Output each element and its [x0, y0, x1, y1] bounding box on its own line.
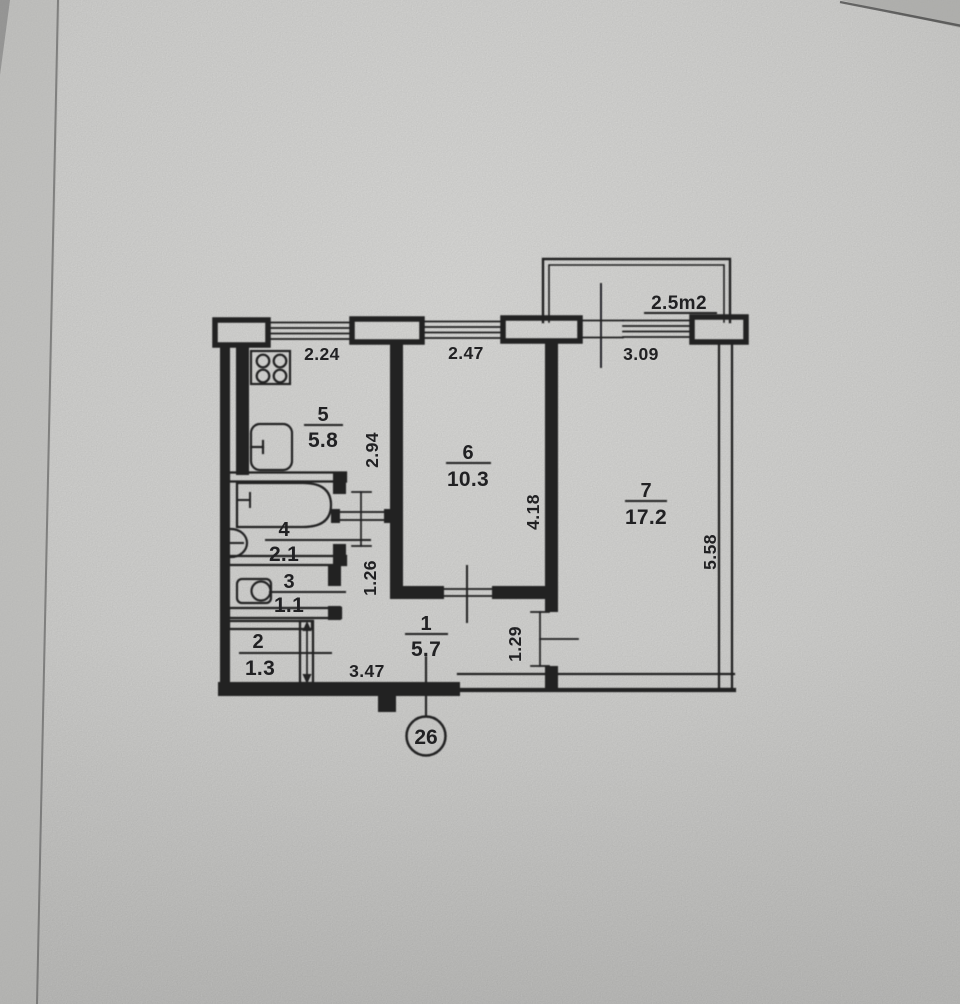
wall-bottom-notch: [378, 696, 396, 712]
dim-kitchen-window: 2.24: [304, 344, 340, 364]
room5-number: 5: [317, 404, 328, 426]
apartment-number: 26: [414, 726, 437, 749]
room5-area: 5.8: [308, 429, 338, 452]
wall-bath-right-upper: [333, 472, 346, 494]
dim-kitchen-depth: 2.94: [362, 432, 382, 468]
wall-kitchen-left: [236, 345, 249, 475]
balcony-area-label: 2.5m2: [651, 293, 707, 314]
scanned-floor-plan-page: 2.24 2.47 3.09 2.5m2 2.94 1.26 4.18 5.58…: [0, 0, 960, 1004]
paper-grain: [0, 0, 960, 1004]
wall-room6-bottom-right: [492, 586, 558, 599]
wall-exterior-left: [220, 343, 230, 695]
dim-room6-window: 2.47: [448, 343, 484, 363]
room1-area: 5.7: [411, 638, 441, 661]
wall-room6-bottom-left: [390, 586, 444, 599]
dim-room7-door: 1.29: [505, 626, 525, 662]
room2-number: 2: [252, 631, 263, 653]
room1-number: 1: [420, 613, 431, 635]
wall-bottom-hall: [218, 682, 460, 696]
dim-corridor-width: 1.26: [360, 560, 380, 596]
wall-wc-right-upper: [328, 565, 341, 586]
room4-number: 4: [278, 519, 290, 541]
wall-kitchen-room6: [390, 341, 403, 587]
dim-balcony-front: 3.09: [623, 344, 659, 364]
dim-room6-depth: 4.18: [523, 494, 543, 530]
floor-plan: 2.24 2.47 3.09 2.5m2 2.94 1.26 4.18 5.58…: [0, 0, 960, 1004]
room4-area: 2.1: [269, 543, 299, 566]
room2-area: 1.3: [245, 657, 275, 680]
room6-area: 10.3: [447, 468, 489, 491]
dim-room7-depth: 5.58: [700, 534, 720, 570]
room7-number: 7: [640, 480, 651, 502]
dim-hall-length: 3.47: [349, 661, 385, 681]
room3-number: 3: [283, 571, 294, 593]
wall-room6-room7-upper: [545, 340, 558, 612]
room6-number: 6: [462, 442, 473, 464]
room3-area: 1.1: [274, 594, 304, 617]
wall-room6-room7-stub: [545, 666, 558, 691]
room7-area: 17.2: [625, 506, 667, 529]
